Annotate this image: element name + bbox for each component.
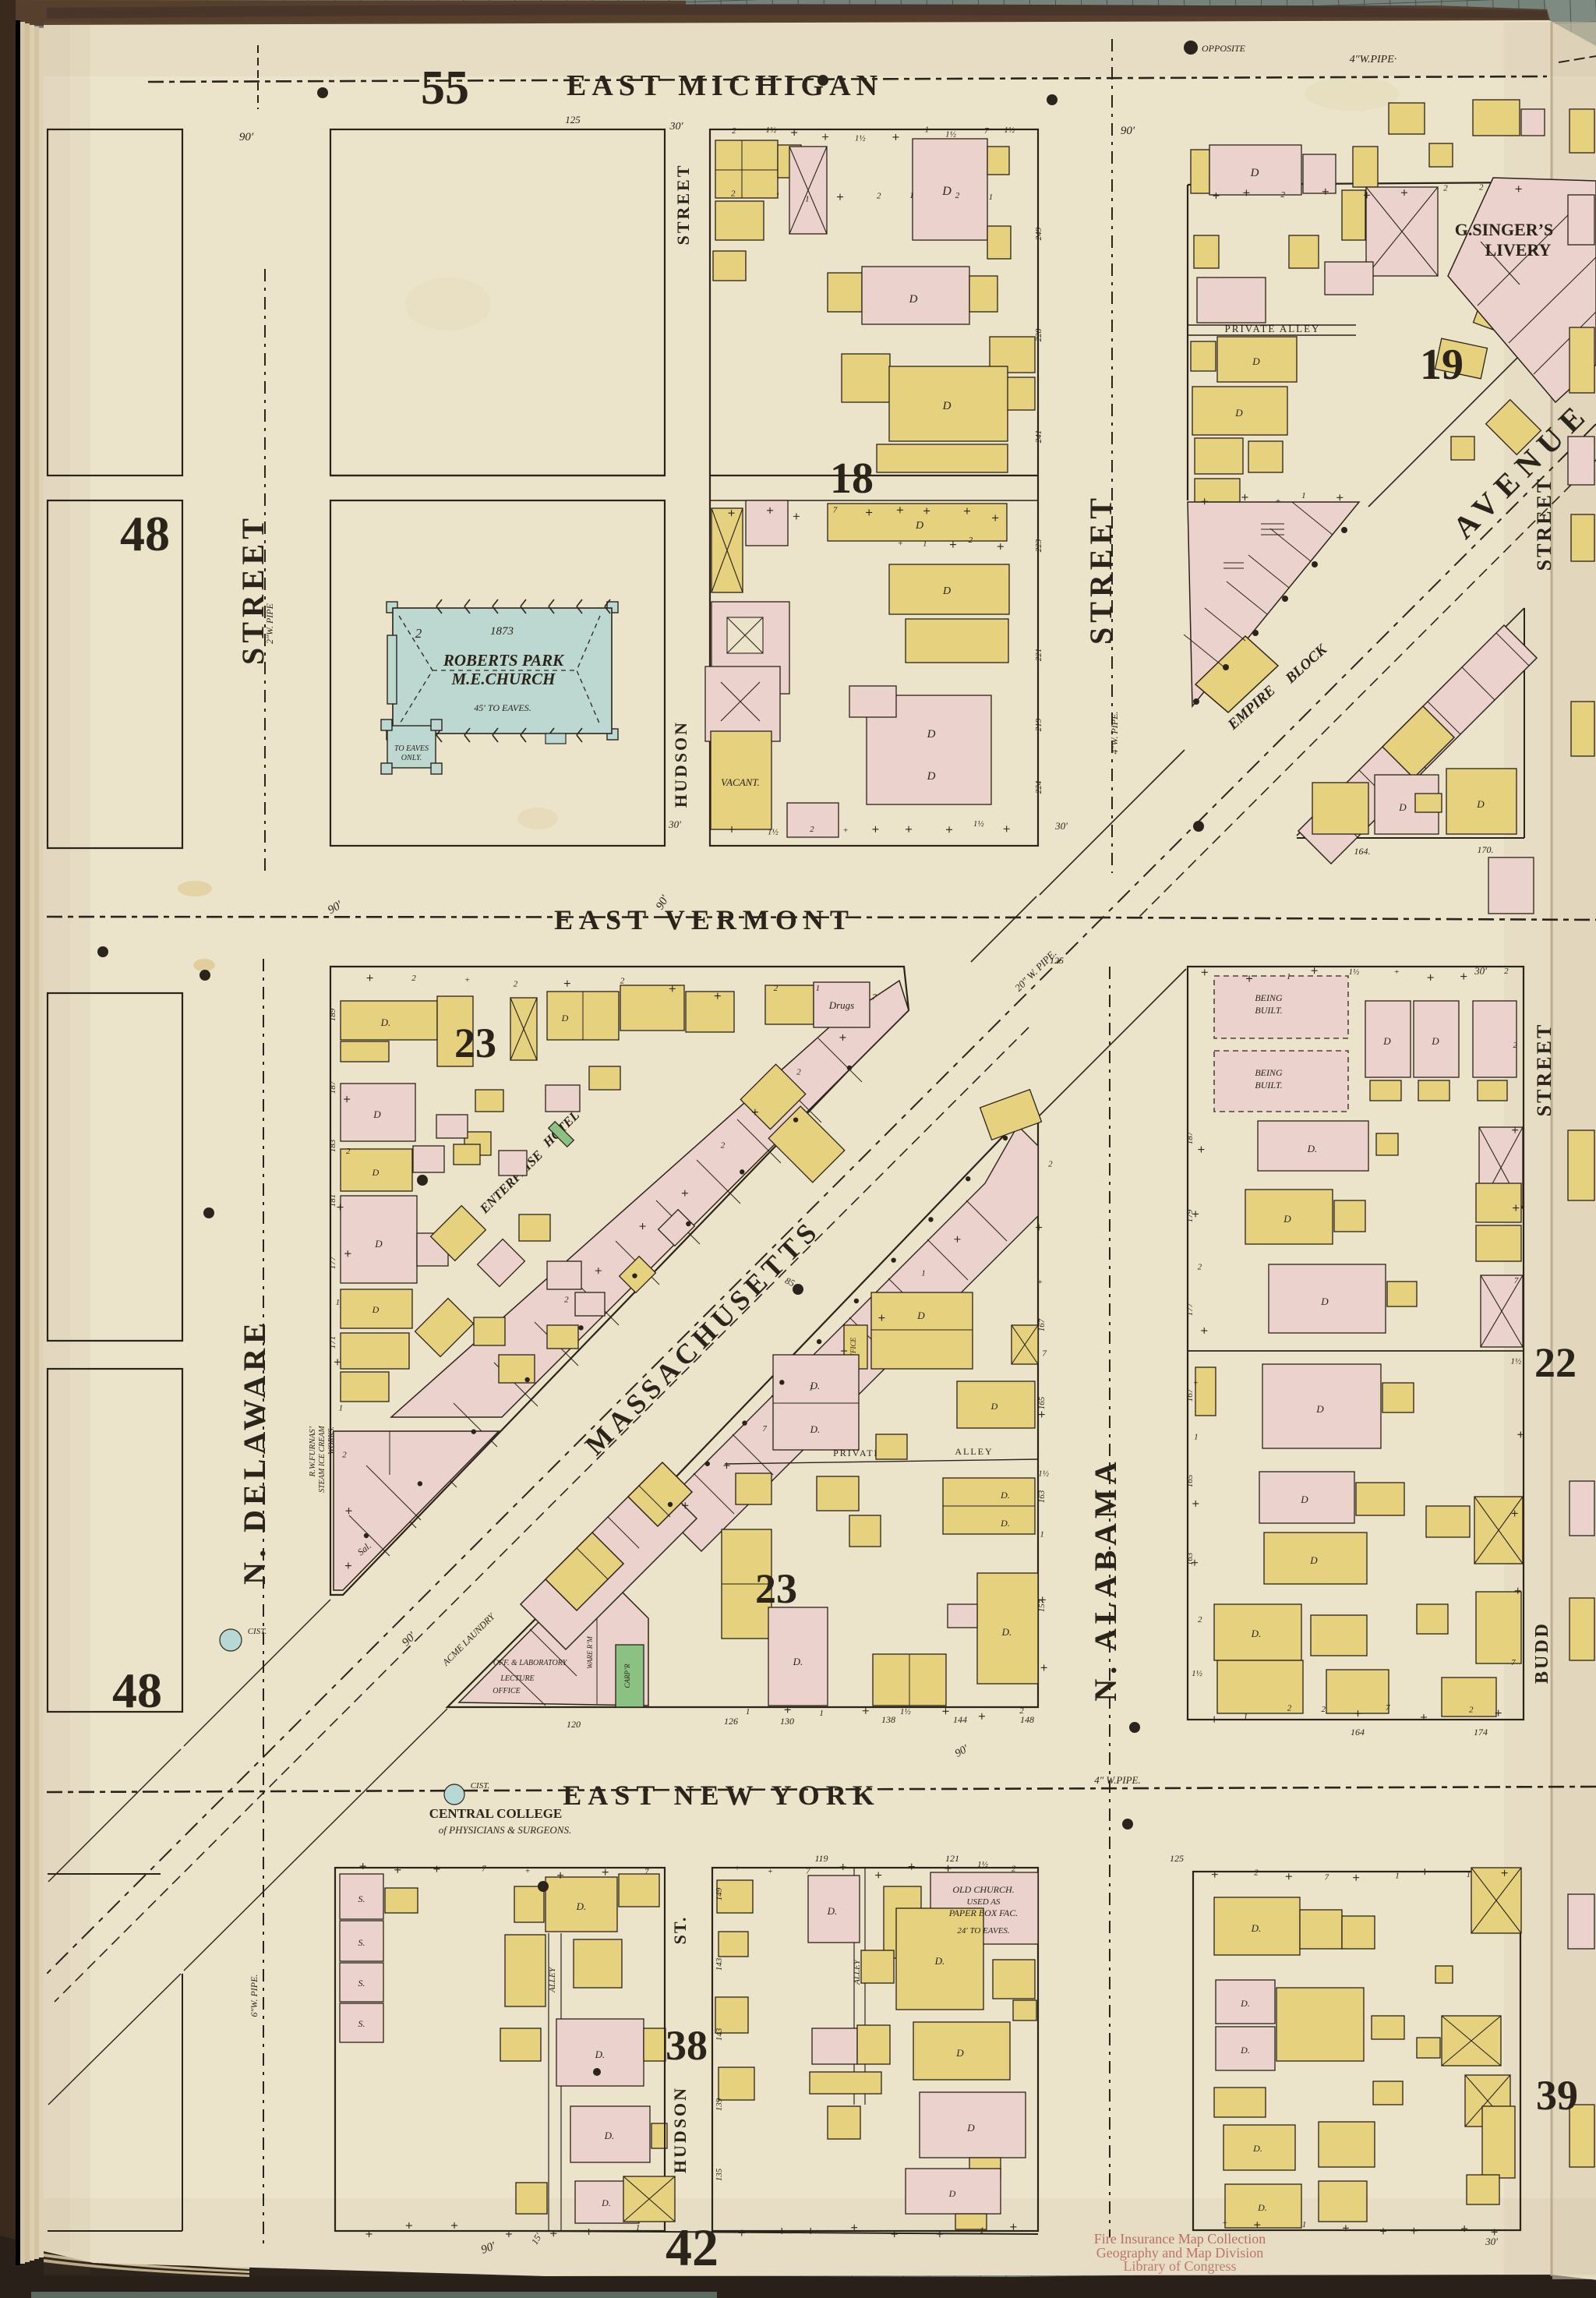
- svg-text:38: 38: [666, 2022, 708, 2069]
- svg-text:D.: D.: [1240, 2045, 1250, 2056]
- svg-text:D: D: [1252, 355, 1260, 367]
- svg-text:224: 224: [1034, 780, 1043, 794]
- svg-text:D.: D.: [793, 1656, 803, 1667]
- svg-text:2: 2: [731, 189, 736, 198]
- svg-text:D: D: [941, 185, 952, 198]
- svg-text:1: 1: [989, 193, 994, 202]
- svg-text:1: 1: [909, 191, 914, 200]
- svg-text:7: 7: [833, 506, 838, 515]
- svg-text:D.: D.: [1307, 1143, 1318, 1154]
- svg-text:1½: 1½: [945, 129, 956, 139]
- svg-text:2: 2: [1254, 1868, 1259, 1878]
- svg-text:2: 2: [346, 1147, 351, 1156]
- svg-text:of PHYSICIANS & SURGEONS.: of PHYSICIANS & SURGEONS.: [439, 1824, 571, 1836]
- svg-text:EAST MICHIGAN: EAST MICHIGAN: [567, 69, 883, 102]
- svg-text:D.: D.: [1001, 1626, 1012, 1638]
- svg-text:ALLEY: ALLEY: [955, 1446, 993, 1457]
- svg-text:45′ TO EAVES.: 45′ TO EAVES.: [474, 702, 531, 713]
- svg-text:Library of Congress: Library of Congress: [1124, 2258, 1237, 2274]
- svg-text:D: D: [1234, 407, 1243, 419]
- svg-text:ROBERTS PARK: ROBERTS PARK: [443, 651, 565, 670]
- svg-text:1½: 1½: [766, 126, 777, 135]
- svg-text:1: 1: [809, 1384, 814, 1393]
- svg-text:STREET: STREET: [673, 164, 693, 246]
- svg-text:+: +: [464, 976, 470, 985]
- svg-text:1: 1: [921, 1269, 926, 1278]
- svg-text:1: 1: [339, 1404, 344, 1413]
- svg-text:HUDSON: HUDSON: [671, 720, 690, 808]
- svg-text:ONLY.: ONLY.: [401, 754, 422, 762]
- svg-text:S.: S.: [358, 1937, 365, 1948]
- svg-text:PRIVATE ALLEY: PRIVATE ALLEY: [1225, 323, 1321, 334]
- svg-text:7: 7: [1511, 1658, 1516, 1667]
- svg-text:1½: 1½: [855, 133, 866, 143]
- svg-text:4″W.PIPE·: 4″W.PIPE·: [1350, 54, 1397, 65]
- svg-text:2: 2: [415, 626, 422, 641]
- svg-text:+: +: [768, 1867, 773, 1876]
- svg-text:D: D: [1300, 1494, 1308, 1505]
- svg-text:D: D: [1431, 1035, 1439, 1047]
- svg-text:219: 219: [1034, 718, 1043, 731]
- svg-text:D.: D.: [601, 2197, 611, 2208]
- svg-text:D: D: [1315, 1403, 1324, 1415]
- svg-text:138: 138: [881, 1714, 895, 1725]
- svg-text:OFF. & LABORATORY: OFF. & LABORATORY: [493, 1659, 568, 1667]
- svg-text:119: 119: [814, 1853, 828, 1864]
- svg-text:D.: D.: [1240, 1998, 1250, 2009]
- svg-text:6″W. PIPE.: 6″W. PIPE.: [249, 1975, 260, 2017]
- svg-text:7: 7: [644, 1868, 649, 1877]
- svg-text:N. ALABAMA: N. ALABAMA: [1088, 1457, 1123, 1701]
- svg-text:187: 187: [328, 1080, 337, 1094]
- svg-text:30′: 30′: [669, 121, 683, 133]
- svg-text:+: +: [1222, 2218, 1227, 2228]
- svg-text:STREET: STREET: [1083, 493, 1118, 645]
- svg-text:125: 125: [1170, 1853, 1184, 1864]
- svg-text:174: 174: [1474, 1727, 1488, 1738]
- svg-text:143: 143: [715, 2028, 724, 2041]
- svg-text:7: 7: [762, 1424, 767, 1434]
- svg-text:18: 18: [830, 454, 874, 503]
- svg-text:1½: 1½: [973, 819, 984, 829]
- svg-text:D: D: [1398, 801, 1407, 813]
- svg-text:+: +: [842, 826, 848, 835]
- svg-text:PAPER BOX FAC.: PAPER BOX FAC.: [948, 1907, 1019, 1918]
- svg-text:+: +: [1275, 497, 1280, 506]
- svg-text:1: 1: [925, 126, 930, 135]
- svg-text:BUILT.: BUILT.: [1255, 1080, 1282, 1091]
- svg-text:2: 2: [774, 984, 779, 993]
- svg-text:LECTURE: LECTURE: [500, 1674, 534, 1683]
- svg-text:2: 2: [1280, 190, 1285, 200]
- svg-text:+: +: [524, 1866, 530, 1876]
- svg-text:D.: D.: [1251, 1628, 1262, 1639]
- svg-text:30′: 30′: [1485, 2236, 1498, 2247]
- svg-text:2″W. PIPE: 2″W. PIPE: [264, 603, 275, 644]
- svg-text:S.: S.: [358, 2018, 365, 2029]
- svg-text:7: 7: [1514, 1276, 1519, 1285]
- svg-text:1½: 1½: [900, 1707, 911, 1716]
- svg-text:2: 2: [1198, 1615, 1202, 1625]
- svg-text:+: +: [734, 1864, 740, 1873]
- svg-text:+: +: [897, 539, 902, 549]
- svg-text:D.: D.: [1251, 1922, 1262, 1934]
- svg-text:R.W.FURNAS’: R.W.FURNAS’: [308, 1426, 317, 1477]
- svg-text:1: 1: [336, 1298, 341, 1307]
- svg-text:HUDSON: HUDSON: [670, 2086, 690, 2173]
- svg-text:228: 228: [1034, 328, 1043, 341]
- svg-text:D: D: [1476, 798, 1485, 810]
- svg-text:2: 2: [342, 1451, 347, 1460]
- svg-text:19: 19: [1420, 341, 1464, 389]
- svg-text:48: 48: [112, 1663, 162, 1718]
- svg-text:D: D: [948, 2188, 956, 2199]
- svg-text:23: 23: [755, 1565, 797, 1612]
- svg-text:D: D: [916, 1310, 925, 1321]
- svg-text:D: D: [1382, 1035, 1391, 1047]
- svg-text:1½: 1½: [1349, 967, 1360, 977]
- svg-text:+: +: [1037, 1278, 1043, 1287]
- svg-text:2: 2: [1479, 182, 1484, 192]
- svg-text:1½: 1½: [1192, 1669, 1202, 1678]
- svg-text:S.: S.: [358, 1893, 365, 1904]
- svg-text:2: 2: [411, 974, 416, 983]
- svg-text:ST.: ST.: [670, 1916, 690, 1945]
- svg-text:CARP’R: CARP’R: [623, 1663, 631, 1688]
- svg-text:D.: D.: [604, 2130, 615, 2141]
- svg-text:2: 2: [1019, 1706, 1024, 1716]
- svg-text:125: 125: [1050, 955, 1064, 966]
- svg-text:D.: D.: [576, 1900, 587, 1912]
- svg-text:1: 1: [1194, 1433, 1199, 1442]
- svg-text:USED AS: USED AS: [967, 1897, 1001, 1907]
- svg-text:STREET: STREET: [1533, 1023, 1555, 1117]
- svg-text:7: 7: [1386, 1703, 1390, 1713]
- svg-text:223: 223: [1034, 539, 1043, 552]
- svg-text:183: 183: [328, 1139, 337, 1152]
- svg-text:D.: D.: [810, 1423, 821, 1435]
- svg-text:221: 221: [1034, 649, 1043, 662]
- svg-text:EAST NEW YORK: EAST NEW YORK: [563, 1780, 880, 1811]
- svg-text:LIVERY: LIVERY: [1485, 240, 1552, 260]
- svg-text:157: 157: [1037, 1599, 1047, 1612]
- svg-text:187: 187: [1185, 1131, 1195, 1144]
- svg-text:1: 1: [1301, 491, 1306, 500]
- svg-text:1½: 1½: [977, 1860, 988, 1869]
- svg-text:Drugs: Drugs: [828, 999, 855, 1011]
- svg-text:163: 163: [1185, 1552, 1195, 1565]
- svg-text:120: 120: [567, 1719, 581, 1730]
- svg-text:CIST.: CIST.: [471, 1781, 490, 1791]
- svg-text:2: 2: [955, 191, 960, 200]
- svg-text:1: 1: [1467, 1870, 1471, 1879]
- svg-text:TO EAVES: TO EAVES: [394, 744, 429, 753]
- svg-text:2: 2: [1287, 1703, 1292, 1713]
- svg-text:22: 22: [1534, 1339, 1577, 1386]
- svg-text:42: 42: [666, 2218, 719, 2277]
- svg-text:D: D: [372, 1304, 380, 1315]
- svg-text:1: 1: [1287, 972, 1291, 981]
- svg-text:D.: D.: [1257, 2202, 1267, 2213]
- svg-text:D: D: [927, 770, 936, 783]
- svg-text:D: D: [942, 400, 952, 412]
- svg-text:D: D: [955, 2047, 964, 2059]
- svg-text:1: 1: [1395, 1871, 1400, 1880]
- svg-text:144: 144: [953, 1714, 967, 1725]
- svg-text:1½: 1½: [768, 827, 779, 836]
- svg-text:30′: 30′: [1474, 965, 1487, 977]
- svg-text:N. DELAWARE: N. DELAWARE: [237, 1318, 272, 1585]
- svg-text:D: D: [1283, 1213, 1291, 1225]
- svg-text:1: 1: [1040, 1530, 1044, 1540]
- svg-text:149: 149: [715, 1887, 724, 1900]
- svg-text:D.: D.: [934, 1955, 945, 1967]
- svg-text:7: 7: [482, 1864, 486, 1873]
- svg-text:D: D: [1320, 1296, 1329, 1307]
- svg-text:2: 2: [721, 1141, 726, 1151]
- svg-text:189: 189: [328, 1008, 337, 1021]
- svg-text:D: D: [909, 293, 918, 306]
- svg-text:D.: D.: [595, 2049, 606, 2060]
- svg-text:Fire Insurance Map Collection: Fire Insurance Map Collection: [1094, 2231, 1266, 2247]
- svg-text:165: 165: [1037, 1396, 1047, 1409]
- svg-text:163: 163: [1037, 1490, 1047, 1503]
- svg-text:OPPOSITE: OPPOSITE: [1202, 43, 1246, 54]
- svg-text:39: 39: [1536, 2072, 1578, 2119]
- svg-text:2: 2: [796, 1068, 801, 1077]
- svg-text:1½: 1½: [1004, 126, 1015, 135]
- svg-text:1873: 1873: [490, 625, 514, 638]
- svg-text:BUILT.: BUILT.: [1255, 1005, 1282, 1016]
- svg-text:EAST VERMONT: EAST VERMONT: [554, 904, 855, 935]
- svg-text:90′: 90′: [239, 131, 254, 143]
- svg-text:OLD CHURCH.: OLD CHURCH.: [952, 1884, 1014, 1895]
- svg-text:D: D: [942, 585, 951, 597]
- svg-text:249: 249: [1034, 227, 1043, 240]
- svg-text:2: 2: [969, 536, 973, 545]
- svg-text:D: D: [1309, 1554, 1318, 1566]
- svg-text:1: 1: [1302, 2220, 1307, 2229]
- svg-text:1½: 1½: [1038, 1469, 1049, 1478]
- svg-text:D.: D.: [380, 1016, 391, 1028]
- svg-text:2: 2: [1198, 1263, 1202, 1272]
- svg-text:1: 1: [805, 195, 810, 204]
- svg-text:STREET: STREET: [1533, 477, 1555, 571]
- svg-text:D: D: [990, 1401, 998, 1412]
- svg-text:7: 7: [984, 126, 989, 136]
- svg-text:24′ TO EAVES.: 24′ TO EAVES.: [957, 1926, 1009, 1936]
- svg-text:148: 148: [1020, 1714, 1034, 1725]
- svg-text:164.: 164.: [1354, 846, 1371, 857]
- svg-text:ALLEY: ALLEY: [853, 1958, 862, 1985]
- svg-text:48: 48: [120, 506, 170, 561]
- svg-text:165: 165: [1185, 1474, 1195, 1487]
- svg-text:CIST.: CIST.: [248, 1627, 267, 1636]
- svg-text:D: D: [915, 520, 923, 532]
- svg-text:+: +: [1193, 1379, 1199, 1388]
- svg-text:D.: D.: [1252, 2143, 1262, 2154]
- svg-text:1: 1: [816, 984, 821, 993]
- svg-text:7: 7: [1325, 1872, 1329, 1882]
- svg-text:S.: S.: [358, 1978, 365, 1989]
- svg-text:WORKS.: WORKS.: [327, 1427, 336, 1455]
- svg-text:7: 7: [872, 993, 877, 1002]
- svg-text:164: 164: [1351, 1727, 1365, 1738]
- svg-text:2: 2: [732, 126, 736, 136]
- svg-text:1: 1: [923, 539, 927, 549]
- svg-text:+: +: [1393, 967, 1399, 977]
- svg-text:167: 167: [1185, 1388, 1195, 1402]
- svg-text:1: 1: [775, 192, 780, 201]
- svg-text:2: 2: [1321, 1705, 1326, 1714]
- svg-text:2: 2: [1012, 1864, 1016, 1873]
- svg-text:241: 241: [1034, 430, 1043, 444]
- svg-text:VACANT.: VACANT.: [721, 776, 760, 788]
- svg-text:4″ W.PIPE.: 4″ W.PIPE.: [1094, 1774, 1140, 1786]
- svg-text:125: 125: [565, 114, 581, 126]
- svg-text:179: 179: [1185, 1209, 1195, 1222]
- svg-text:7: 7: [1042, 1349, 1047, 1359]
- svg-text:G.SINGER’S: G.SINGER’S: [1455, 220, 1554, 239]
- svg-text:171: 171: [328, 1336, 337, 1349]
- svg-text:2: 2: [1469, 1705, 1474, 1714]
- svg-text:55: 55: [421, 62, 469, 115]
- svg-text:D.: D.: [827, 1905, 838, 1917]
- svg-text:23: 23: [454, 1020, 496, 1066]
- svg-text:D.: D.: [1000, 1518, 1010, 1529]
- svg-text:90′: 90′: [1121, 125, 1135, 137]
- svg-text:D: D: [374, 1238, 383, 1250]
- svg-text:135: 135: [715, 2168, 724, 2181]
- svg-text:OFFICE: OFFICE: [493, 1687, 521, 1695]
- svg-text:D: D: [966, 2122, 975, 2134]
- svg-text:177: 177: [1185, 1303, 1195, 1316]
- svg-text:167: 167: [1037, 1318, 1047, 1331]
- svg-text:139: 139: [715, 2098, 724, 2111]
- svg-text:143: 143: [715, 1957, 724, 1971]
- svg-text:2: 2: [564, 1296, 569, 1305]
- svg-text:ALLEY: ALLEY: [548, 1966, 557, 1993]
- svg-text:D: D: [372, 1167, 380, 1178]
- svg-text:2: 2: [620, 977, 625, 986]
- svg-text:BEING: BEING: [1255, 1067, 1283, 1078]
- svg-text:177: 177: [328, 1256, 337, 1269]
- svg-text:D.: D.: [1000, 1490, 1010, 1501]
- svg-text:D: D: [1250, 167, 1259, 179]
- svg-text:2: 2: [877, 191, 881, 200]
- svg-text:WARE R’M: WARE R’M: [586, 1636, 594, 1669]
- svg-text:1½: 1½: [1510, 1357, 1521, 1366]
- svg-text:2: 2: [1443, 184, 1448, 193]
- svg-text:M.E.CHURCH: M.E.CHURCH: [450, 670, 556, 688]
- svg-text:2: 2: [1513, 1041, 1517, 1050]
- svg-text:2: 2: [1504, 967, 1509, 976]
- svg-text:1: 1: [819, 1709, 824, 1718]
- svg-text:7: 7: [806, 1867, 810, 1876]
- svg-text:170.: 170.: [1478, 844, 1494, 855]
- svg-text:30′: 30′: [1054, 820, 1068, 832]
- svg-text:30′: 30′: [668, 818, 681, 830]
- svg-text:2: 2: [514, 979, 518, 988]
- svg-text:STEAM ICE CREAM: STEAM ICE CREAM: [318, 1426, 327, 1493]
- svg-text:1: 1: [746, 1707, 750, 1716]
- svg-text:D: D: [373, 1108, 381, 1120]
- svg-text:CENTRAL COLLEGE: CENTRAL COLLEGE: [429, 1806, 563, 1821]
- svg-text:BUDD: BUDD: [1532, 1621, 1552, 1684]
- svg-text:1: 1: [1244, 1712, 1248, 1721]
- svg-text:121: 121: [945, 1853, 959, 1864]
- svg-text:BEING: BEING: [1255, 992, 1283, 1003]
- svg-text:126: 126: [724, 1716, 738, 1727]
- svg-text:D: D: [927, 728, 936, 741]
- svg-text:2: 2: [810, 825, 814, 834]
- svg-text:130: 130: [780, 1716, 794, 1727]
- svg-text:4″W. PIPE.: 4″W. PIPE.: [1109, 712, 1120, 755]
- svg-text:D: D: [561, 1013, 569, 1023]
- svg-text:181: 181: [328, 1194, 337, 1207]
- svg-text:2: 2: [1048, 1159, 1053, 1168]
